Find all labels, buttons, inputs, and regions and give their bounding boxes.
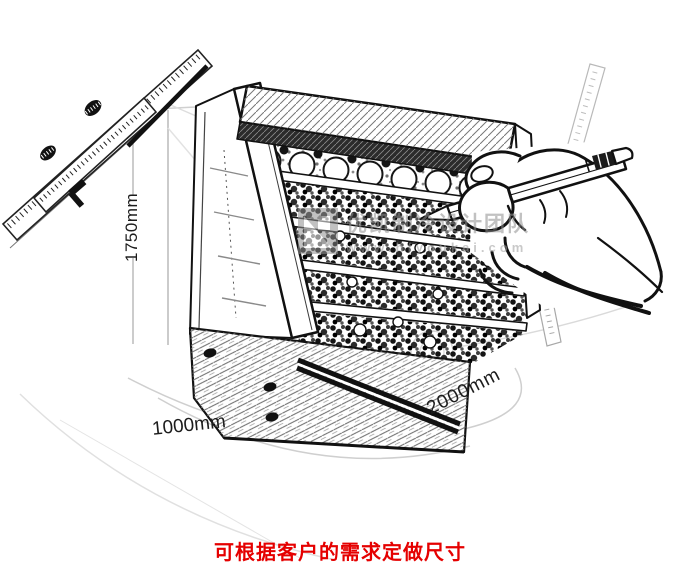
vernier-caliper-illustration xyxy=(3,50,212,248)
display-cooler-illustration xyxy=(190,83,540,452)
pencil-eraser xyxy=(612,148,632,164)
product-showcase: 1750mm 1000mm 2000mm 优凯制冷设计团队 www.hfyouk… xyxy=(0,0,680,578)
caption-text: 可根据客户的需求定做尺寸 xyxy=(0,536,680,565)
dimension-height-label: 1750mm xyxy=(122,190,142,262)
sketch-illustration xyxy=(0,0,680,578)
